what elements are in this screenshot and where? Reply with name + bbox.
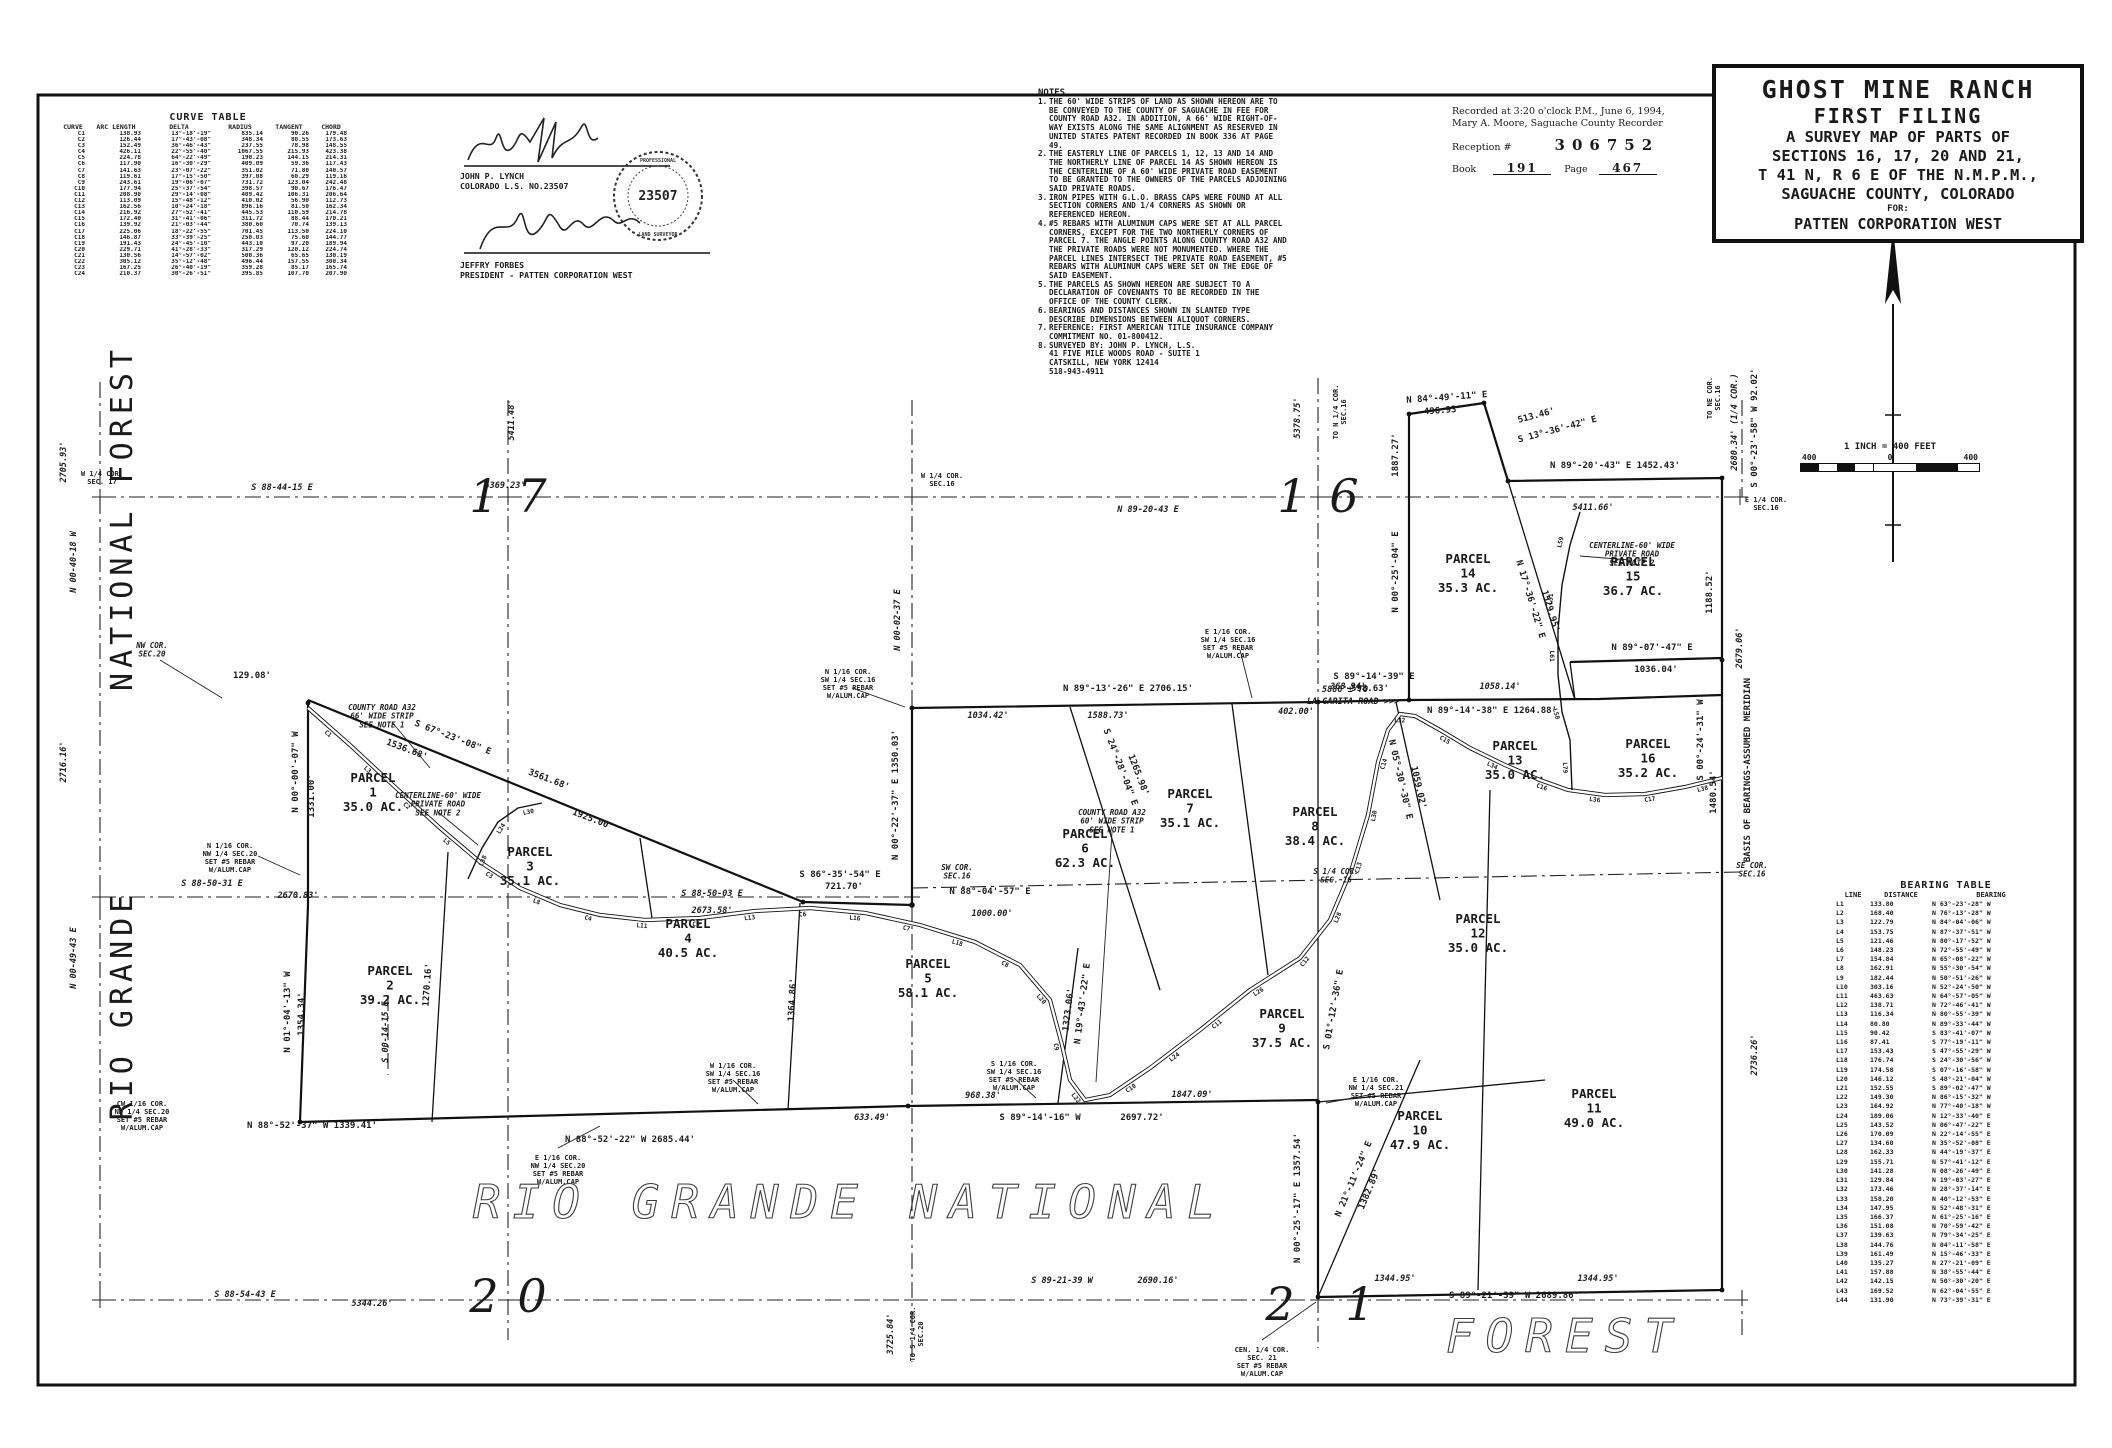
title-for-label: FOR: <box>1720 204 2076 215</box>
table-cell: N 40°-12'-53" E <box>1932 1195 2050 1204</box>
title-client: PATTEN CORPORATION WEST <box>1720 215 2076 233</box>
table-cell: L21 <box>1836 1084 1870 1093</box>
private-road-east <box>1558 512 1580 790</box>
road-marker-L32: L32 <box>1394 717 1405 724</box>
curve-table: CURVE TABLE CURVEARC LENGTHDELTARADIUSTA… <box>58 112 358 277</box>
table-cell: 164.92 <box>1870 1102 1932 1111</box>
table-header-cell: ARC LENGTH <box>88 123 144 131</box>
table-cell: S 89°-02'-47" W <box>1932 1084 2050 1093</box>
map-label: 3725.84' <box>886 1314 896 1356</box>
scale-block: 1 INCH = 400 FEET 400 0 400 <box>1800 442 1980 472</box>
parcel-label-15: PARCEL1536.7 AC. <box>1603 554 1663 598</box>
reception-number: 306752 <box>1555 136 1660 154</box>
map-label: W 1/16 COR.SW 1/4 SEC.16SET #5 REBARW/AL… <box>706 1062 761 1094</box>
map-label: 1364.86' <box>787 978 799 1022</box>
table-cell: L12 <box>1836 1001 1870 1010</box>
map-label: S 86°-35'-54" E <box>799 870 880 880</box>
section-numeral: 6 <box>1329 469 1358 523</box>
map-label: S 1/16 COR.SW 1/4 SEC.16SET #5 REBARW/AL… <box>987 1060 1042 1092</box>
section-numeral: 1 <box>469 469 498 523</box>
map-label: N 88°-52'-37" W 1339.41' <box>247 1121 377 1131</box>
page-number: 467 <box>1599 162 1657 175</box>
map-label: N 1/16 COR.NW 1/4 SEC.20SET #5 REBARW/AL… <box>203 842 258 874</box>
road-marker-L30: L30 <box>1370 810 1379 823</box>
map-label: 1354.34' <box>297 992 307 1035</box>
table-cell: 153.75 <box>1870 928 1932 937</box>
map-label: 2690.16' <box>1137 1276 1179 1286</box>
seal-number: 23507 <box>638 189 677 204</box>
title-line-2: FIRST FILING <box>1720 104 2076 128</box>
table-cell: N 73°-39'-31" E <box>1932 1296 2050 1305</box>
table-cell: L29 <box>1836 1158 1870 1167</box>
map-label: SW COR.SEC.16 <box>941 863 973 881</box>
title-line-5: T 41 N, R 6 E OF THE N.M.P.M., <box>1720 166 2076 185</box>
table-cell: N 27°-21'-09" E <box>1932 1259 2050 1268</box>
table-cell: 210.37 <box>88 271 144 277</box>
note-item: 5.THE PARCELS AS SHOWN HEREON ARE SUBJEC… <box>1038 281 1290 307</box>
curve-table-header: CURVEARC LENGTHDELTARADIUSTANGENTCHORD <box>58 123 358 131</box>
table-cell: N 80°-17'-52" W <box>1932 937 2050 946</box>
table-cell: N 64°-57'-05" W <box>1932 992 2050 1001</box>
map-label: 1000.00' <box>972 909 1013 919</box>
table-cell: N 89°-33'-44" W <box>1932 1020 2050 1029</box>
parcel-label-1: PARCEL135.0 AC. <box>343 770 403 814</box>
map-label: N 00°-00'-07" W <box>291 731 301 813</box>
table-cell: 134.60 <box>1870 1139 1932 1148</box>
table-cell: L39 <box>1836 1250 1870 1259</box>
table-cell: L11 <box>1836 992 1870 1001</box>
table-cell: 131.90 <box>1870 1296 1932 1305</box>
parcel-label-7: PARCEL735.1 AC. <box>1160 786 1220 830</box>
road-marker-L30: L30 <box>522 808 535 817</box>
table-cell: L14 <box>1836 1020 1870 1029</box>
map-label: 2670.83' <box>277 891 319 901</box>
scale-left-label: 400 <box>1802 453 1816 462</box>
map-label: N 01°-04'-13" W <box>283 971 293 1053</box>
map-label: CEN. 1/4 COR.SEC. 21SET #5 REBARW/ALUM.C… <box>1235 1346 1290 1378</box>
map-label: 721.70' <box>825 882 863 892</box>
map-label: 5378.75' <box>1293 398 1303 439</box>
table-cell: 182.44 <box>1870 974 1932 983</box>
road-marker-C4: C4 <box>584 914 593 923</box>
map-label: 496.93' <box>1424 405 1463 418</box>
map-label: E 1/4 COR.SEC.16 <box>1745 496 1787 512</box>
bearing-table-header: LINEDISTANCEBEARING <box>1836 891 2056 900</box>
table-cell: L26 <box>1836 1130 1870 1139</box>
table-cell: 116.34 <box>1870 1010 1932 1019</box>
parcel-label-16: PARCEL1635.2 AC. <box>1618 736 1678 780</box>
table-cell: L44 <box>1836 1296 1870 1305</box>
map-label: S 88-50-03 E <box>681 889 743 899</box>
surveyor-seal: PROFESSIONAL 23507 LAND SURVEYOR <box>608 146 708 246</box>
map-label: 1344.95' <box>1375 1274 1416 1284</box>
note-item: 2.THE EASTERLY LINE OF PARCELS 1, 12, 13… <box>1038 150 1290 194</box>
section-numeral: 7 <box>517 469 547 523</box>
scale-zero-label: 0 <box>1888 453 1893 462</box>
map-label: 5886'± TO <box>1322 685 1368 695</box>
table-cell: 162.33 <box>1870 1148 1932 1157</box>
map-label: S 01°-12'-36" E <box>1322 969 1346 1051</box>
table-cell: 153.43 <box>1870 1047 1932 1056</box>
parcel-label-9: PARCEL937.5 AC. <box>1252 1006 1312 1050</box>
table-cell: L19 <box>1836 1066 1870 1075</box>
officer-title: PRESIDENT - PATTEN CORPORATION WEST <box>460 271 760 281</box>
table-cell: L36 <box>1836 1222 1870 1231</box>
table-cell: 154.84 <box>1870 955 1932 964</box>
road-marker-L51: L51 <box>1547 593 1555 605</box>
table-cell: N 55°-30'-54" W <box>1932 964 2050 973</box>
map-label: S 88-50-31 E <box>181 879 243 889</box>
table-cell: L28 <box>1836 1148 1870 1157</box>
table-cell: 148.23 <box>1870 946 1932 955</box>
map-label: N 00°-22'-37" E 1350.03' <box>891 730 901 860</box>
table-cell: S 47°-55'-29" W <box>1932 1047 2050 1056</box>
table-cell: L25 <box>1836 1121 1870 1130</box>
seal-ring-top: PROFESSIONAL <box>640 158 676 164</box>
section-numeral: 1 <box>1345 1277 1374 1331</box>
table-cell: 129.84 <box>1870 1176 1932 1185</box>
map-label: 1344.95' <box>1578 1274 1619 1284</box>
map-label: E 1/16 COR.SW 1/4 SEC.16SET #5 REBARW/AL… <box>1201 628 1256 660</box>
table-cell: 395.85 <box>214 271 266 277</box>
map-label: TO N 1/4 COR.SEC.16 <box>1332 385 1348 440</box>
table-cell: 463.63 <box>1870 992 1932 1001</box>
table-cell: 158.20 <box>1870 1195 1932 1204</box>
map-label: 402.00' <box>1278 707 1314 717</box>
table-cell: N 70°-59'-42" E <box>1932 1222 2050 1231</box>
scale-bar <box>1800 463 1980 472</box>
map-label: 2673.58' <box>691 906 733 916</box>
table-cell: L10 <box>1836 983 1870 992</box>
table-cell: 168.40 <box>1870 909 1932 918</box>
map-label: N 1/16 COR.SW 1/4 SEC.16SET #5 REBARW/AL… <box>821 668 876 700</box>
table-cell: 161.49 <box>1870 1250 1932 1259</box>
seal-ring-bottom: LAND SURVEYOR <box>638 232 678 238</box>
table-cell: N 86°-15'-32" W <box>1932 1093 2050 1102</box>
road-marker-L79: L79 <box>1561 762 1568 774</box>
section-numeral: 2 <box>468 1269 498 1323</box>
table-cell: S 48°-21'-04" W <box>1932 1075 2050 1084</box>
map-label: TO S 1/4 COR.SEC.20 <box>909 1307 925 1362</box>
roads <box>308 512 1722 1100</box>
table-header-cell: BEARING <box>1932 891 2050 900</box>
table-cell: 144.76 <box>1870 1241 1932 1250</box>
map-label: 5411.48' <box>507 400 517 441</box>
table-cell: S 77°-19'-11" W <box>1932 1038 2050 1047</box>
table-header-cell: CHORD <box>312 123 350 131</box>
table-cell: L30 <box>1836 1167 1870 1176</box>
table-header-cell: DISTANCE <box>1870 891 1932 900</box>
map-label: 1188.52' <box>1705 570 1715 613</box>
table-cell: N 22°-14'-55" E <box>1932 1130 2050 1139</box>
table-cell: 189.06 <box>1870 1112 1932 1121</box>
parcel-label-4: PARCEL440.5 AC. <box>658 916 718 960</box>
table-cell: 133.80 <box>1870 900 1932 909</box>
map-label: N 89°-14'-38" E 1264.88' <box>1427 706 1557 716</box>
table-cell: 169.52 <box>1870 1287 1932 1296</box>
title-line-6: SAGUACHE COUNTY, COLORADO <box>1720 185 2076 204</box>
road-marker-L38: L38 <box>1697 785 1710 795</box>
table-cell: 147.95 <box>1870 1204 1932 1213</box>
map-label: N 00-49-43 E <box>69 926 79 989</box>
notes-list: 1.THE 60' WIDE STRIPS OF LAND AS SHOWN H… <box>1038 98 1290 377</box>
title-line-1: GHOST MINE RANCH <box>1720 76 2076 104</box>
map-label: 1847.09' <box>1172 1090 1213 1100</box>
table-cell: N 84°-04'-06" W <box>1932 918 2050 927</box>
table-cell: 30°-26'-51" <box>144 271 214 277</box>
bearing-table: BEARING TABLE LINEDISTANCEBEARING L1133.… <box>1836 880 2056 1305</box>
map-label: N 88°-04'-57" E <box>949 887 1030 897</box>
table-cell: C24 <box>58 271 88 277</box>
map-label: N 05°-30'-30" E <box>1386 739 1414 820</box>
table-cell: N 08°-26'-49" E <box>1932 1167 2050 1176</box>
table-cell: L18 <box>1836 1056 1870 1065</box>
book-number: 191 <box>1493 162 1551 175</box>
map-label: S 00°-24'-31" W <box>1696 699 1706 781</box>
map-label: 2705.93' <box>59 442 69 484</box>
table-cell: N 44°-19'-37" E <box>1932 1148 2050 1157</box>
bearing-table-rows: L1133.80N 63°-23'-28" WL2168.40N 76°-13'… <box>1836 900 2056 1305</box>
road-marker-L58: L58 <box>1551 708 1561 721</box>
table-cell: N 12°-33'-40" E <box>1932 1112 2050 1121</box>
bearing-table-title: BEARING TABLE <box>1836 880 2056 891</box>
table-cell: N 76°-13'-28" W <box>1932 909 2050 918</box>
table-cell: 207.90 <box>312 271 350 277</box>
table-cell: 152.55 <box>1870 1084 1932 1093</box>
section-numeral: 0 <box>517 1269 546 1323</box>
book-label: Book <box>1452 164 1476 175</box>
road-marker-C6: C6 <box>799 911 807 918</box>
table-cell: N 77°-40'-18" W <box>1932 1102 2050 1111</box>
table-cell: L15 <box>1836 1029 1870 1038</box>
table-cell: 143.52 <box>1870 1121 1932 1130</box>
map-label: N 00°-25'-04" E <box>1391 531 1401 612</box>
map-label: 513.46' <box>1517 406 1556 425</box>
road-marker-L61: L61 <box>1548 651 1555 662</box>
map-label: S 89°-14'-16" W <box>999 1113 1081 1123</box>
map-label: 2680.34' (1/4 COR.) <box>1730 373 1740 471</box>
map-label: 2697.72' <box>1120 1113 1163 1123</box>
map-label: N 89-20-43 E <box>1116 505 1179 515</box>
table-cell: 107.70 <box>266 271 312 277</box>
map-label: 1480.54' <box>1709 770 1719 813</box>
scale-right-label: 400 <box>1964 453 1978 462</box>
table-cell: N 57°-41'-12" E <box>1932 1158 2050 1167</box>
table-cell: N 50°-51'-26" W <box>1932 974 2050 983</box>
table-cell: N 72°-55'-49" W <box>1932 946 2050 955</box>
map-label: N 00°-25'-17" E 1357.54' <box>1293 1133 1303 1263</box>
table-cell: 142.15 <box>1870 1277 1932 1286</box>
table-cell: N 87°-37'-51" W <box>1932 928 2050 937</box>
parcel-label-5: PARCEL558.1 AC. <box>898 956 958 1000</box>
parcel-label-2: PARCEL239.2 AC. <box>360 963 420 1007</box>
table-cell: L41 <box>1836 1268 1870 1277</box>
map-label: W 1/4 COR.SEC.16 <box>921 472 963 488</box>
table-cell: L16 <box>1836 1038 1870 1047</box>
table-cell: S 07°-16'-58" W <box>1932 1066 2050 1075</box>
map-label: S 00-14-15 E <box>381 1000 391 1062</box>
road-marker-L13: L13 <box>744 914 756 922</box>
map-label: N 89°-13'-26" E 2706.15' <box>1063 684 1193 694</box>
note-item: 8.SURVEYED BY: JOHN P. LYNCH, L.S. 41 FI… <box>1038 342 1290 377</box>
map-label: S 89°-14'-39" E <box>1333 672 1414 682</box>
road-marker-L16: L16 <box>849 915 861 923</box>
map-label: N 89°-07'-47" E <box>1611 643 1692 653</box>
table-cell: 174.58 <box>1870 1066 1932 1075</box>
table-cell: L5 <box>1836 937 1870 946</box>
road-marker-C9: C9 <box>1052 1042 1061 1051</box>
table-cell: 155.71 <box>1870 1158 1932 1167</box>
table-cell: L43 <box>1836 1287 1870 1296</box>
map-label: 633.49' <box>854 1113 890 1123</box>
table-cell: 87.41 <box>1870 1038 1932 1047</box>
map-label: 1323.06' <box>1061 988 1076 1032</box>
road-marker-C5: C5 <box>692 921 700 928</box>
table-cell: 173.46 <box>1870 1185 1932 1194</box>
table-cell: 303.16 <box>1870 983 1932 992</box>
table-cell: L2 <box>1836 909 1870 918</box>
map-label: 2736.26' <box>1750 1035 1760 1077</box>
parcel-label-8: PARCEL838.4 AC. <box>1285 804 1345 848</box>
table-cell: L32 <box>1836 1185 1870 1194</box>
table-cell: 122.79 <box>1870 918 1932 927</box>
table-cell: N 15°-46'-33" E <box>1932 1250 2050 1259</box>
table-cell: L24 <box>1836 1112 1870 1121</box>
title-block: GHOST MINE RANCH FIRST FILING A SURVEY M… <box>1712 64 2084 243</box>
table-cell: L34 <box>1836 1204 1870 1213</box>
table-cell: 141.28 <box>1870 1167 1932 1176</box>
table-cell: L4 <box>1836 928 1870 937</box>
table-cell: 138.71 <box>1870 1001 1932 1010</box>
section-numeral: 2 <box>1264 1277 1294 1331</box>
map-label: 5344.26' <box>352 1299 393 1309</box>
table-cell: N 06°-47'-22" E <box>1932 1121 2050 1130</box>
road-marker-L59: L59 <box>1556 536 1565 549</box>
table-cell: L6 <box>1836 946 1870 955</box>
table-cell: 149.30 <box>1870 1093 1932 1102</box>
table-cell: 157.88 <box>1870 1268 1932 1277</box>
table-cell: L40 <box>1836 1259 1870 1268</box>
table-cell: N 35°-52'-08" E <box>1932 1139 2050 1148</box>
table-cell: 135.27 <box>1870 1259 1932 1268</box>
title-line-3: A SURVEY MAP OF PARTS OF <box>1720 128 2076 147</box>
table-cell: N 52°-48'-31" E <box>1932 1204 2050 1213</box>
table-cell: N 63°-23'-28" W <box>1932 900 2050 909</box>
note-item: 1.THE 60' WIDE STRIPS OF LAND AS SHOWN H… <box>1038 98 1290 150</box>
table-cell: N 72°-46'-41" W <box>1932 1001 2050 1010</box>
table-cell: L42 <box>1836 1277 1870 1286</box>
survey-sheet: S 88-44-15 E5369.23'N 89-20-43 EW 1/4 CO… <box>0 0 2112 1448</box>
table-cell: 176.74 <box>1870 1056 1932 1065</box>
table-cell: N 61°-25'-16" E <box>1932 1213 2050 1222</box>
map-label: BASIS OF BEARINGS-ASSUMED MERIDIAN <box>1743 678 1753 862</box>
map-label: N 88°-52'-22" W 2685.44' <box>565 1135 695 1145</box>
map-label: N 19°-43'-22" E <box>1073 963 1093 1045</box>
map-label: 5411.66' <box>1573 503 1614 513</box>
table-cell: L17 <box>1836 1047 1870 1056</box>
table-cell: L37 <box>1836 1231 1870 1240</box>
table-header-cell: CURVE <box>58 123 88 131</box>
table-cell: L31 <box>1836 1176 1870 1185</box>
map-label: LA GARITA ROAD >>> <box>1307 697 1399 707</box>
table-cell: N 79°-34'-25" E <box>1932 1231 2050 1240</box>
parcel-label-6: PARCEL662.3 AC. <box>1055 826 1115 870</box>
table-cell: S 83°-41'-07" W <box>1932 1029 2050 1038</box>
table-cell: L3 <box>1836 918 1870 927</box>
map-label: 129.08' <box>233 671 271 681</box>
page-label: Page <box>1564 164 1587 175</box>
map-label: S 1/4 COR.SEC. 16 <box>1313 867 1358 885</box>
forest-label: NATIONAL FOREST <box>105 345 140 691</box>
table-cell: N 38°-55'-44" E <box>1932 1268 2050 1277</box>
notes-block: NOTES 1.THE 60' WIDE STRIPS OF LAND AS S… <box>1038 88 1290 377</box>
road-marker-L8: L8 <box>532 897 542 906</box>
note-item: 3.IRON PIPES WITH G.L.O. BRASS CAPS WERE… <box>1038 194 1290 220</box>
map-label: 1588.73' <box>1088 711 1129 721</box>
table-cell: L23 <box>1836 1102 1870 1111</box>
map-label: 3561.68' <box>527 768 571 793</box>
table-cell: L8 <box>1836 964 1870 973</box>
curve-table-rows: C1138.9313°-18'-19"835.1490.26179.48C212… <box>58 131 358 277</box>
table-cell: L1 <box>1836 900 1870 909</box>
table-cell: 162.91 <box>1870 964 1932 973</box>
reception-label: Reception # <box>1452 142 1511 153</box>
table-cell: N 28°-37'-14" E <box>1932 1185 2050 1194</box>
map-label: 1331.00' <box>307 774 317 817</box>
table-cell: S 24°-30'-56" W <box>1932 1056 2050 1065</box>
table-header-cell: RADIUS <box>214 123 266 131</box>
parcel-label-12: PARCEL1235.0 AC. <box>1448 911 1508 955</box>
parcel-label-14: PARCEL1435.3 AC. <box>1438 551 1498 595</box>
road-marker-C17: C17 <box>1644 795 1656 804</box>
parcel-label-3: PARCEL335.1 AC. <box>500 844 560 888</box>
table-cell: L35 <box>1836 1213 1870 1222</box>
table-cell: 166.37 <box>1870 1213 1932 1222</box>
table-cell: L9 <box>1836 974 1870 983</box>
map-label: S 89°-21'-39" W 2689.86' <box>1449 1291 1579 1301</box>
table-cell: L27 <box>1836 1139 1870 1148</box>
parcel-label-10: PARCEL1047.9 AC. <box>1390 1108 1450 1152</box>
table-cell: 90.42 <box>1870 1029 1932 1038</box>
map-label: S 89-21-39 W <box>1031 1276 1093 1286</box>
forest-outline-label: RIO GRANDE NATIONAL <box>473 1175 1227 1229</box>
map-label: 1058.14' <box>1480 682 1521 692</box>
table-cell: L38 <box>1836 1241 1870 1250</box>
map-label: COUNTY ROAD A3266' WIDE STRIPSEE NOTE 1 <box>348 703 416 729</box>
table-cell: N 50°-30'-20" E <box>1932 1277 2050 1286</box>
table-cell: N 62°-04'-55" E <box>1932 1287 2050 1296</box>
map-label: S 88-44-15 E <box>251 483 313 493</box>
map-label: 1270.16' <box>422 963 435 1007</box>
forest-outline-label: FOREST <box>1446 1309 1684 1363</box>
table-cell: L20 <box>1836 1075 1870 1084</box>
map-label: 1887.27' <box>1391 433 1401 476</box>
parcel-label-11: PARCEL1149.0 AC. <box>1564 1086 1624 1130</box>
table-cell: 121.46 <box>1870 937 1932 946</box>
section-numeral: 1 <box>1277 469 1306 523</box>
table-header-cell: DELTA <box>144 123 214 131</box>
road-marker-L11: L11 <box>636 922 648 930</box>
map-label: 2679.06' <box>1735 628 1745 670</box>
map-label: 1034.42' <box>968 711 1009 721</box>
map-label: TO NE COR.SEC.16 <box>1706 377 1722 419</box>
note-item: 4.#5 REBARS WITH ALUMINUM CAPS WERE SET … <box>1038 220 1290 281</box>
map-label: N 00-02-37 E <box>893 588 903 651</box>
table-cell: 80.80 <box>1870 1020 1932 1029</box>
curve-table-title: CURVE TABLE <box>58 112 358 123</box>
note-item: 7.REFERENCE: FIRST AMERICAN TITLE INSURA… <box>1038 324 1290 341</box>
table-cell: L22 <box>1836 1093 1870 1102</box>
